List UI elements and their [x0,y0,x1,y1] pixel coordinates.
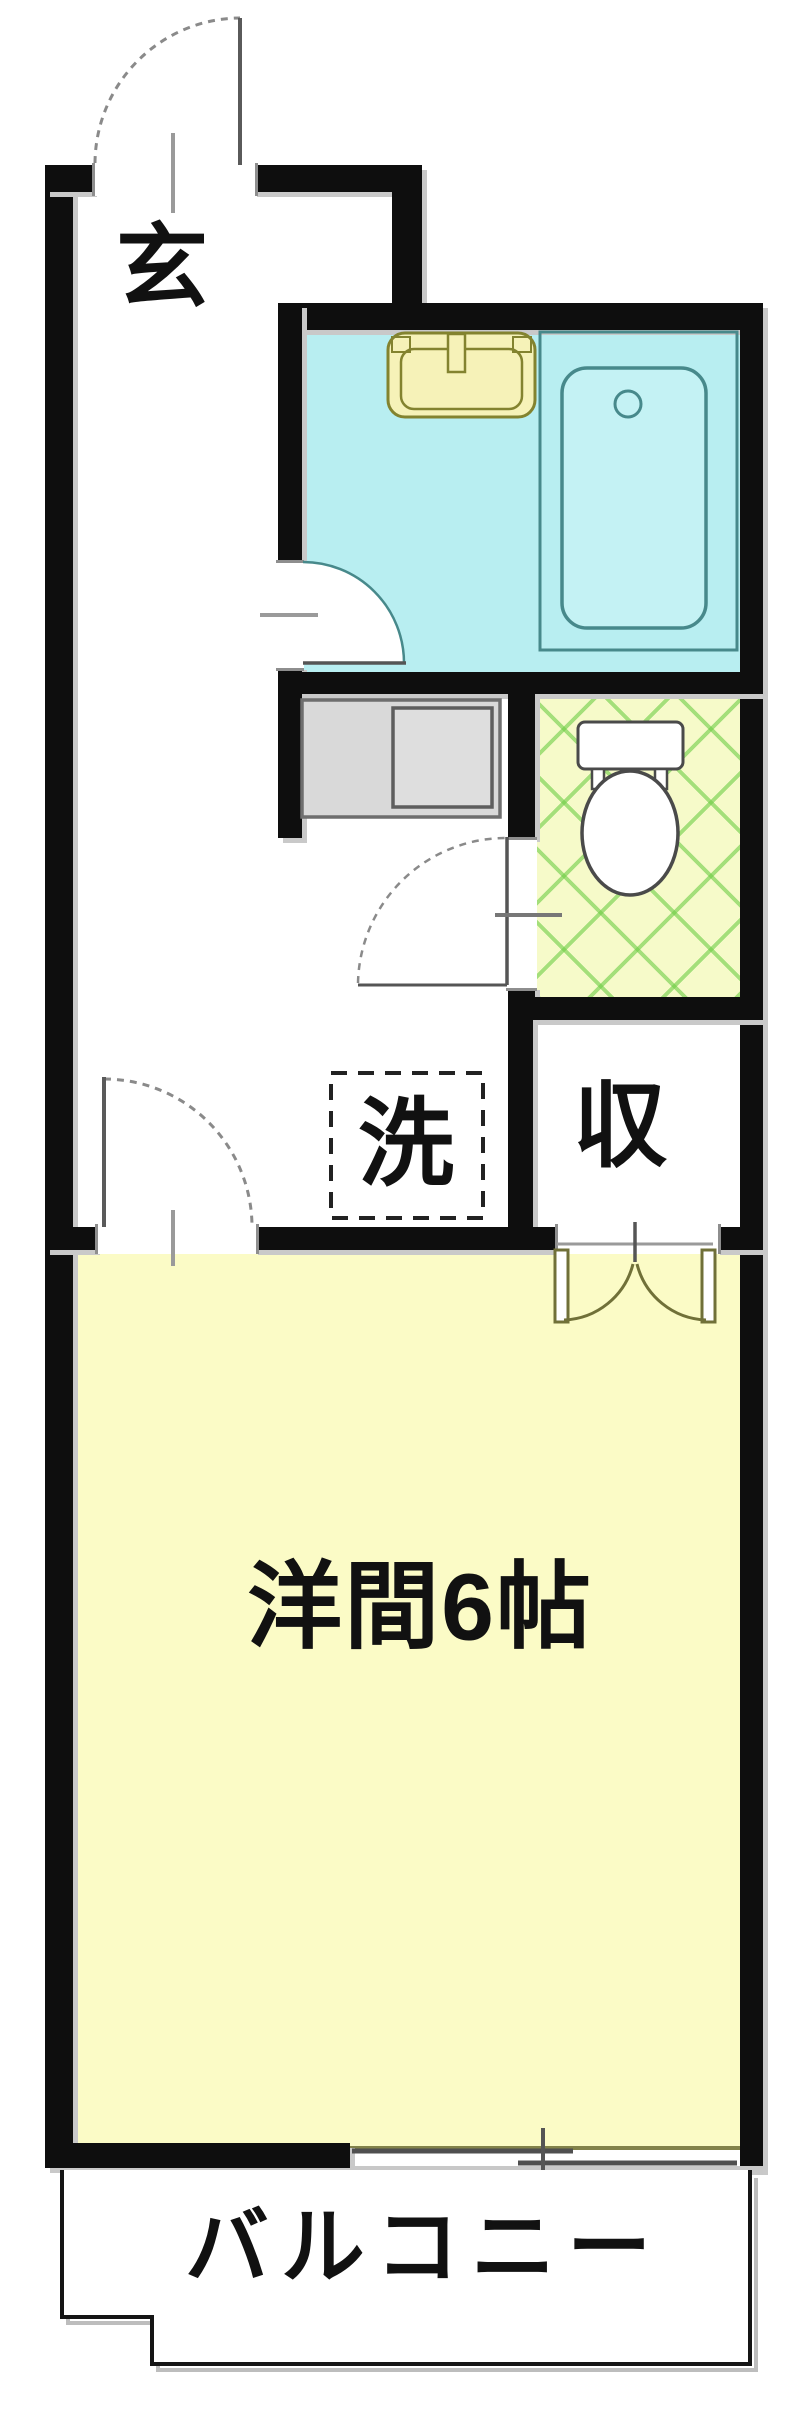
toilet-door-opening [506,837,537,991]
wall-room-top-a [45,1227,95,1250]
room-door-opening [95,1224,259,1254]
toilet-room [535,694,740,997]
window-sill [350,2166,763,2175]
floor-plan: 玄 洗 収 洋間6帖 バルコニー [0,0,800,2413]
wall-bathroom-left-upper [278,303,302,560]
balcony-label: バルコニー [185,2205,663,2289]
wall-entrance-top-right [252,165,422,192]
main-room-label: 洋間6帖 [247,1561,593,1656]
wall-exterior-stub [392,192,422,303]
wall-closet-left [508,1020,533,1250]
wall-bathroom-left-lower [278,665,302,838]
closet-door-opening [555,1224,721,1254]
entrance-door-opening [92,163,258,196]
entrance-label: 玄 [116,222,210,314]
wall-toilet-bottom [508,997,763,1020]
bathroom-door-opening [276,560,304,671]
laundry-label: 洗 [358,1097,456,1193]
storage-label: 収 [573,1079,669,1173]
kitchen-counter-icon [302,700,500,817]
bathroom [302,330,740,672]
wall-under-bathroom [302,672,763,694]
wall-room-bottom [45,2143,350,2168]
wall-entrance-top-left [45,165,92,192]
western-room [73,1250,740,2150]
wall-toilet-left-upper [508,694,535,837]
wall-room-top-b [253,1227,555,1250]
wall-room-top-c [715,1227,763,1250]
wall-left [45,165,73,2168]
entrance-hall [73,192,278,1227]
wall-bathroom-top [278,303,763,330]
